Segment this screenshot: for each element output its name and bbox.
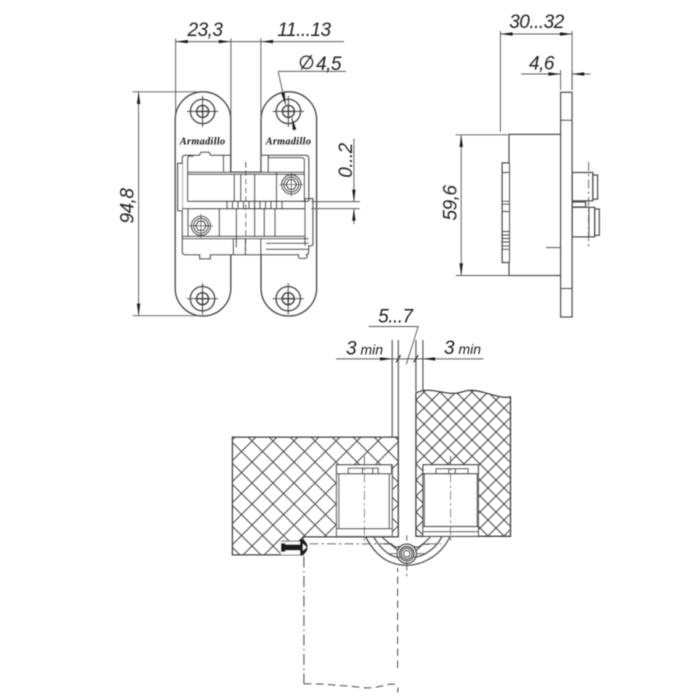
svg-text:30...32: 30...32 — [509, 12, 565, 33]
svg-text:min: min — [361, 341, 384, 357]
svg-text:5...7: 5...7 — [378, 307, 414, 328]
svg-text:3: 3 — [346, 338, 357, 359]
svg-text:Armadillo: Armadillo — [265, 137, 312, 148]
svg-text:Armadillo: Armadillo — [179, 137, 226, 148]
svg-text:59,6: 59,6 — [440, 185, 461, 221]
svg-text:min: min — [459, 341, 482, 357]
svg-text:23,3: 23,3 — [187, 20, 224, 41]
svg-text:4,5: 4,5 — [316, 54, 342, 75]
svg-text:3: 3 — [444, 338, 455, 359]
svg-text:11...13: 11...13 — [277, 20, 331, 41]
svg-text:4,6: 4,6 — [529, 54, 555, 75]
svg-text:94,8: 94,8 — [118, 188, 139, 224]
svg-text:0...2: 0...2 — [336, 142, 357, 177]
